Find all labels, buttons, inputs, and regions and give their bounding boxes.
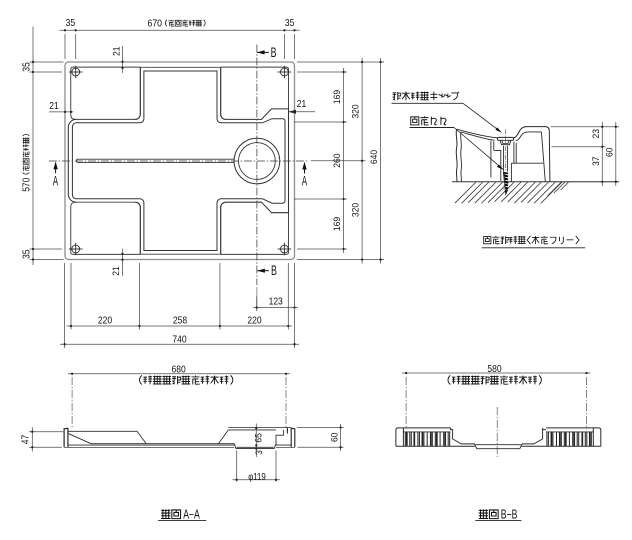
svg-text:60: 60 [329,433,340,443]
svg-text:21: 21 [111,47,122,57]
svg-text:169: 169 [332,217,343,231]
svg-text:740: 740 [172,335,186,346]
svg-text:670: 670 [148,18,163,29]
svg-text:680: 680 [172,364,186,375]
svg-text:φ119: φ119 [248,472,266,483]
svg-text:220: 220 [247,315,261,326]
svg-text:B: B [271,262,277,278]
svg-text:35: 35 [66,18,76,29]
svg-text:35: 35 [22,62,33,72]
svg-text:65: 65 [254,433,264,443]
svg-text:35: 35 [22,249,33,259]
svg-text:320: 320 [351,104,362,118]
svg-text:580: 580 [487,364,501,375]
svg-text:B: B [271,44,277,60]
svg-text:35: 35 [285,18,295,29]
svg-text:A−A: A−A [183,507,200,521]
svg-text:23: 23 [591,129,602,139]
svg-text:B−B: B−B [501,507,518,521]
svg-text:123: 123 [269,297,283,308]
svg-text:A: A [53,173,58,188]
svg-text:320: 320 [351,203,362,217]
svg-text:A: A [302,173,307,188]
svg-text:640: 640 [369,150,380,164]
svg-text:21: 21 [297,99,307,110]
svg-text:169: 169 [332,90,343,104]
svg-text:47: 47 [21,434,32,444]
svg-text:37: 37 [591,156,602,166]
svg-text:220: 220 [98,315,112,326]
svg-text:258: 258 [173,315,187,326]
svg-text:21: 21 [111,266,122,276]
svg-text:21: 21 [49,101,59,112]
svg-text:60: 60 [605,147,616,157]
svg-text:570: 570 [21,177,32,191]
svg-text:3: 3 [254,450,264,455]
